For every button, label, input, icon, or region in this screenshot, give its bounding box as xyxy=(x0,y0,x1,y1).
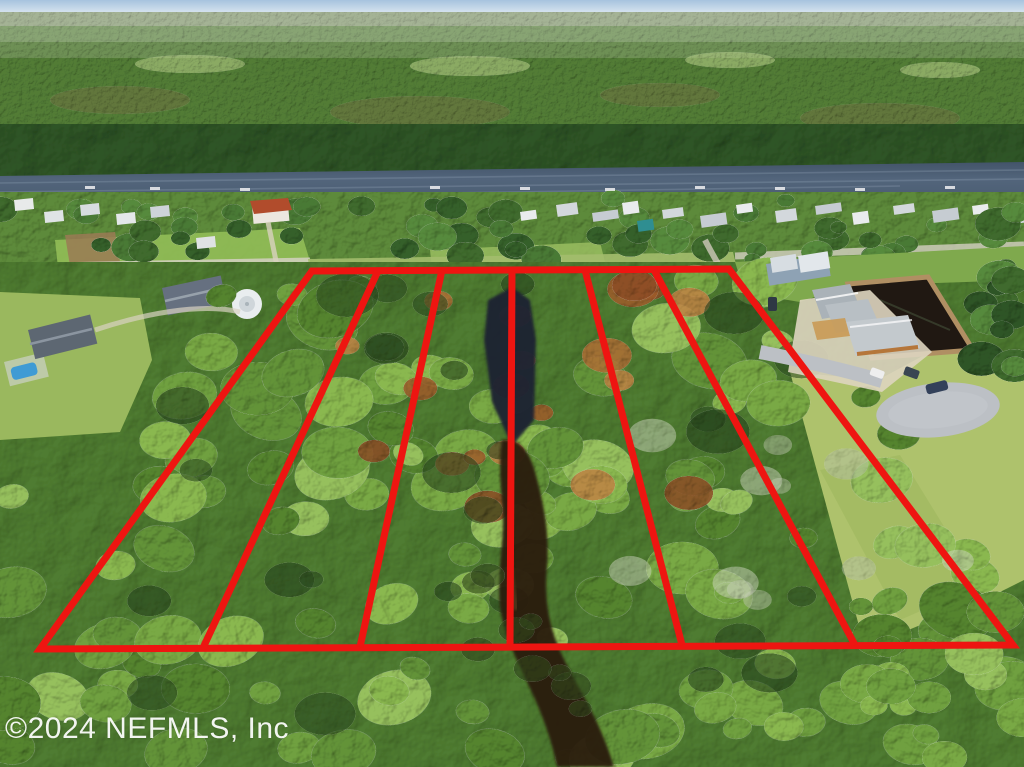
aerial-photo-canvas xyxy=(0,0,1024,767)
lot-divider-line-3 xyxy=(510,270,512,646)
teal-house xyxy=(637,219,654,232)
watermark-text: ©2024 NEFMLS, Inc xyxy=(5,712,289,746)
aerial-photo: ©2024 NEFMLS, Inc xyxy=(0,0,1024,767)
car xyxy=(768,297,777,311)
